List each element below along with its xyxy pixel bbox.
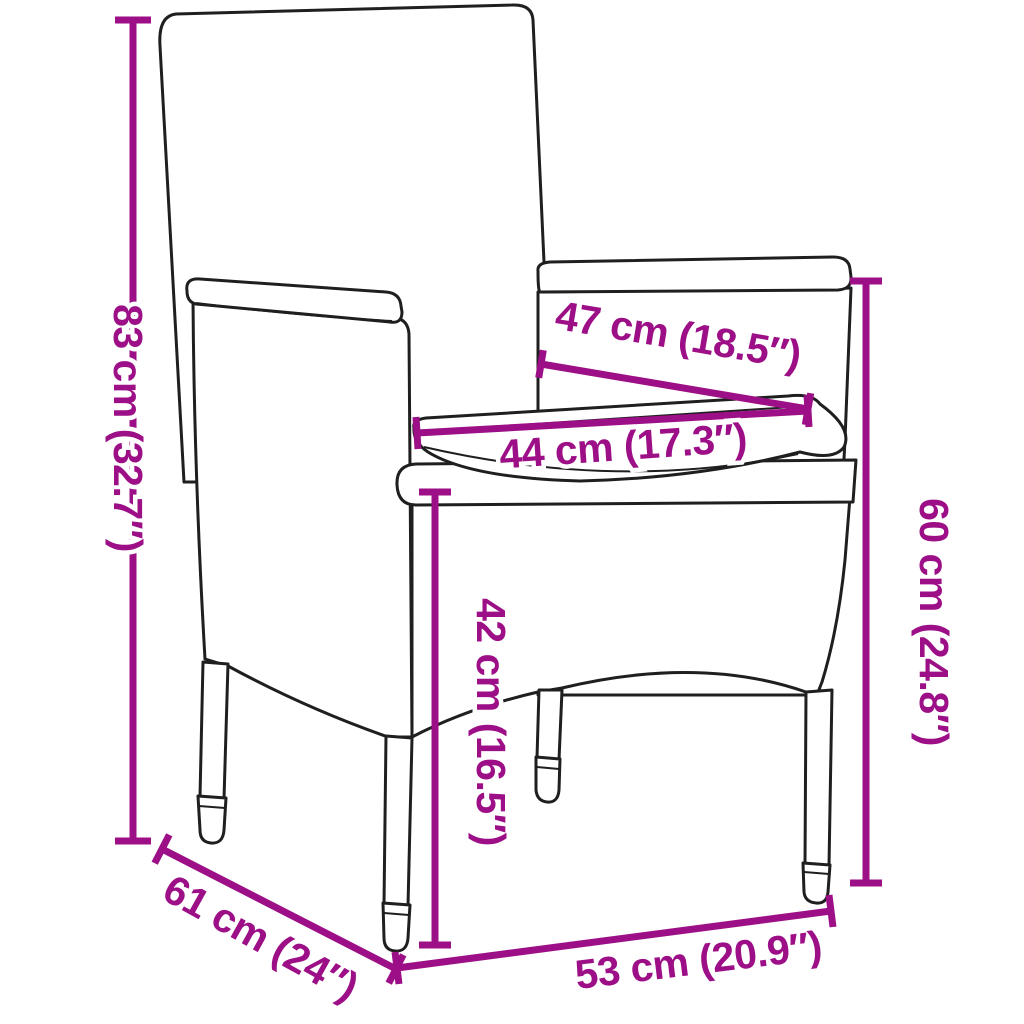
chair-leg-back-left (198, 662, 228, 843)
chair-leg-front-right (803, 690, 832, 903)
dim-armrest-height-label: 60 cm (24.8″) (911, 498, 957, 746)
dim-base-width-label: 53 cm (20.9″) (572, 922, 824, 998)
dim-armrest-height (850, 281, 882, 883)
chair-leg-back-right (536, 690, 562, 802)
chair-dimensions-svg: 83 cm (32.7″) 61 cm (24″) 53 cm (20.9″) … (0, 0, 1024, 1024)
dim-seat-height-label: 42 cm (16.5″) (468, 598, 514, 846)
dim-total-height-label: 83 cm (32.7″) (105, 304, 151, 552)
chair-leg-front-left (383, 736, 412, 951)
chair-right-armrest-cap (538, 257, 851, 292)
product-dimension-diagram: 83 cm (32.7″) 61 cm (24″) 53 cm (20.9″) … (0, 0, 1024, 1024)
